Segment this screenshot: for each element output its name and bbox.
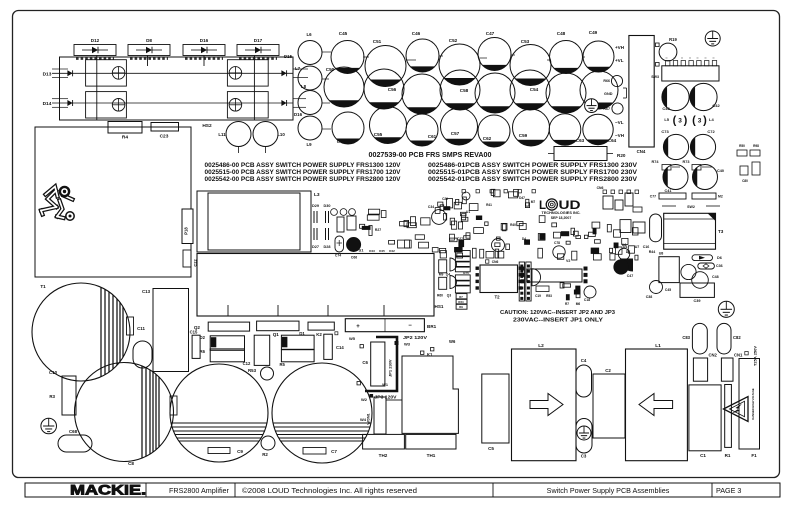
svg-text:Q3: Q3 xyxy=(447,294,452,298)
svg-text:BR1: BR1 xyxy=(427,324,437,329)
svg-text:(: ( xyxy=(692,115,696,127)
svg-text:C77: C77 xyxy=(650,195,656,199)
svg-text:C39: C39 xyxy=(694,299,701,303)
svg-text:CN2: CN2 xyxy=(709,353,718,358)
svg-text:L11: L11 xyxy=(218,132,226,137)
svg-text:C13: C13 xyxy=(142,289,151,294)
svg-text:R53: R53 xyxy=(546,294,552,298)
svg-text:K2: K2 xyxy=(316,332,322,337)
svg-text:L8: L8 xyxy=(301,84,307,89)
svg-text:C12: C12 xyxy=(243,361,251,366)
svg-text:0025515-00 PCB ASSY SWITCH POW: 0025515-00 PCB ASSY SWITCH POWER SUPPLY … xyxy=(205,169,402,176)
svg-text:T2: T2 xyxy=(494,295,500,300)
svg-text:C62: C62 xyxy=(483,136,492,141)
svg-text:SW2: SW2 xyxy=(687,205,695,209)
svg-text:DANGER HIGH VOLTAGE: DANGER HIGH VOLTAGE xyxy=(751,388,755,420)
svg-text:C48: C48 xyxy=(712,275,719,279)
svg-text:PAGE 3: PAGE 3 xyxy=(716,486,741,495)
svg-text:R41: R41 xyxy=(486,203,492,207)
svg-text:C60: C60 xyxy=(337,139,346,144)
svg-text:D30: D30 xyxy=(324,204,331,208)
svg-text:0025542-01PCB ASSY SWITCH POWE: 0025542-01PCB ASSY SWITCH POWER SUPPLY F… xyxy=(428,176,638,183)
svg-text:T3: T3 xyxy=(718,229,724,234)
svg-text:W4: W4 xyxy=(360,417,367,422)
svg-text:U4: U4 xyxy=(622,243,626,247)
svg-text:R19: R19 xyxy=(669,37,677,42)
svg-text:C7: C7 xyxy=(331,449,337,454)
svg-text:M6: M6 xyxy=(576,302,581,306)
svg-text:D4: D4 xyxy=(522,237,526,241)
svg-text:D2: D2 xyxy=(200,335,206,340)
svg-text:R27: R27 xyxy=(375,228,381,232)
svg-text:W2: W2 xyxy=(361,397,368,402)
svg-text:I: I xyxy=(672,57,676,58)
svg-text:C48: C48 xyxy=(557,31,566,36)
svg-text:SW3: SW3 xyxy=(651,75,659,79)
svg-text:R5: R5 xyxy=(280,362,286,367)
svg-text:D17: D17 xyxy=(254,38,263,43)
svg-text:C83: C83 xyxy=(682,335,690,340)
svg-text:C61: C61 xyxy=(428,134,437,139)
svg-text:D27: D27 xyxy=(312,245,319,249)
svg-text:C51: C51 xyxy=(373,39,382,44)
svg-text:T1: T1 xyxy=(40,284,46,289)
svg-text:I: I xyxy=(688,57,692,58)
svg-text:R1: R1 xyxy=(725,453,731,458)
svg-text:C64: C64 xyxy=(608,138,617,143)
svg-text:TECHNOLOGIES INC.: TECHNOLOGIES INC. xyxy=(542,211,581,215)
svg-text:C66: C66 xyxy=(351,256,357,260)
svg-text:C23: C23 xyxy=(160,134,169,140)
svg-text:C50: C50 xyxy=(326,67,335,72)
svg-text:230VAC--INSERT JP1 ONLY: 230VAC--INSERT JP1 ONLY xyxy=(513,318,604,324)
svg-text:C6: C6 xyxy=(362,360,368,365)
svg-text:R20: R20 xyxy=(617,153,626,158)
svg-text:C11: C11 xyxy=(137,326,145,331)
svg-text:D16: D16 xyxy=(294,112,303,117)
svg-text:M7: M7 xyxy=(531,200,536,204)
svg-text:R40: R40 xyxy=(510,223,516,227)
svg-text:C16: C16 xyxy=(643,245,650,249)
svg-text:3: 3 xyxy=(698,118,702,125)
svg-text:D29: D29 xyxy=(312,204,319,208)
svg-text:C52: C52 xyxy=(449,38,458,43)
svg-text:C2: C2 xyxy=(605,368,611,373)
svg-text:C80: C80 xyxy=(742,179,748,183)
svg-text:T25A 250V: T25A 250V xyxy=(753,346,758,366)
svg-text:FRS2800 Amplifier: FRS2800 Amplifier xyxy=(169,486,230,495)
svg-text:R50: R50 xyxy=(739,144,745,148)
svg-text:I: I xyxy=(704,57,708,58)
svg-text:(: ( xyxy=(673,115,677,127)
svg-text:R75: R75 xyxy=(463,271,469,275)
svg-text:R7: R7 xyxy=(459,295,463,299)
svg-text:U7: U7 xyxy=(635,245,640,249)
svg-text:I: I xyxy=(696,57,700,58)
svg-text:L10: L10 xyxy=(277,132,285,137)
svg-text:JP1 230V: JP1 230V xyxy=(388,359,393,377)
svg-text:JP2 120V: JP2 120V xyxy=(403,335,427,340)
svg-text:TH2: TH2 xyxy=(379,453,388,458)
svg-text:C36: C36 xyxy=(716,264,723,268)
svg-text:R9: R9 xyxy=(459,305,463,309)
svg-text:HS2: HS2 xyxy=(202,123,212,129)
svg-text:0027539-00 PCB FRS SMPS REVA00: 0027539-00 PCB FRS SMPS REVA00 xyxy=(369,150,492,159)
svg-text:+: + xyxy=(356,324,360,330)
svg-text:Q4: Q4 xyxy=(446,273,451,277)
svg-text:R53: R53 xyxy=(248,368,257,373)
svg-text:D14: D14 xyxy=(43,101,52,107)
svg-text:F1: F1 xyxy=(751,453,757,458)
svg-text:SEP 18,2007: SEP 18,2007 xyxy=(551,216,572,220)
svg-text:R24: R24 xyxy=(458,300,464,304)
svg-text:D8: D8 xyxy=(146,38,152,43)
svg-text:I: I xyxy=(711,57,715,58)
svg-text:C8: C8 xyxy=(128,461,134,466)
svg-text:0025486-00 PCB ASSY SWITCH POW: 0025486-00 PCB ASSY SWITCH POWER SUPPLY … xyxy=(205,162,402,169)
svg-text:C63: C63 xyxy=(576,138,585,143)
svg-text:C42: C42 xyxy=(712,103,720,108)
svg-text:L5: L5 xyxy=(664,117,669,122)
svg-text:C47: C47 xyxy=(627,274,634,278)
svg-text:Q1: Q1 xyxy=(273,332,280,337)
svg-text:R4: R4 xyxy=(122,135,128,141)
svg-text:C15: C15 xyxy=(190,330,198,335)
svg-text:C45: C45 xyxy=(339,31,348,36)
svg-text:R6: R6 xyxy=(200,349,206,354)
svg-text:−VL: −VL xyxy=(615,120,624,125)
svg-text:C40: C40 xyxy=(717,169,724,173)
svg-text:CN6: CN6 xyxy=(492,260,499,264)
svg-text:C4: C4 xyxy=(581,358,587,363)
svg-text:C59: C59 xyxy=(519,133,528,138)
svg-text:C10: C10 xyxy=(49,370,58,375)
svg-text:R3: R3 xyxy=(49,394,55,399)
svg-text:D47: D47 xyxy=(519,196,525,200)
svg-text:C49: C49 xyxy=(589,30,598,35)
svg-text:Switch Power Supply PCB Assemb: Switch Power Supply PCB Assemblies xyxy=(547,486,670,495)
svg-text:C78: C78 xyxy=(554,241,560,245)
svg-text:R73: R73 xyxy=(683,160,690,164)
svg-text:GND: GND xyxy=(604,92,613,96)
svg-text:D28: D28 xyxy=(324,245,331,249)
svg-text:R7: R7 xyxy=(565,302,569,306)
svg-text:C57: C57 xyxy=(451,131,460,136)
svg-text:R60: R60 xyxy=(437,294,443,298)
svg-text:M2: M2 xyxy=(718,195,723,199)
svg-text:CN6: CN6 xyxy=(597,186,604,190)
svg-text:C47: C47 xyxy=(486,31,495,36)
svg-text:3: 3 xyxy=(678,118,682,125)
svg-text:): ) xyxy=(684,115,688,127)
svg-text:CN4: CN4 xyxy=(637,149,646,154)
svg-text:W3: W3 xyxy=(404,342,411,347)
svg-text:C72: C72 xyxy=(707,129,715,134)
svg-text:MACKIE.: MACKIE. xyxy=(70,483,146,498)
svg-text:L6: L6 xyxy=(306,32,312,37)
svg-text:I: I xyxy=(665,57,669,58)
svg-text:W6: W6 xyxy=(449,339,456,344)
svg-text:C54: C54 xyxy=(530,87,539,92)
svg-text:W/DM1: W/DM1 xyxy=(367,413,371,424)
svg-text:U1: U1 xyxy=(466,210,470,214)
svg-text:0025542-00 PCB ASSY SWITCH POW: 0025542-00 PCB ASSY SWITCH POWER SUPPLY … xyxy=(205,176,402,183)
svg-text:R98: R98 xyxy=(753,144,759,148)
svg-text:L4: L4 xyxy=(709,117,714,122)
svg-text:L7: L7 xyxy=(295,66,301,71)
svg-text:+VL: +VL xyxy=(615,58,624,63)
svg-text:C9: C9 xyxy=(237,449,243,454)
svg-text:C68: C68 xyxy=(69,429,78,434)
svg-text:R67: R67 xyxy=(603,107,610,111)
svg-text:C34: C34 xyxy=(428,205,434,209)
svg-text:L3: L3 xyxy=(314,192,320,198)
svg-text:C26: C26 xyxy=(442,197,448,201)
svg-text:L2: L2 xyxy=(538,343,544,349)
svg-text:C53: C53 xyxy=(521,39,530,44)
svg-text:−: − xyxy=(408,323,412,329)
svg-text:L9: L9 xyxy=(306,142,312,147)
svg-text:D43: D43 xyxy=(369,249,375,253)
svg-text:0025486-01PCB ASSY SWITCH POWE: 0025486-01PCB ASSY SWITCH POWER SUPPLY F… xyxy=(428,162,638,169)
svg-text:D13: D13 xyxy=(43,71,52,77)
svg-text:R74: R74 xyxy=(652,160,660,164)
svg-text:C73: C73 xyxy=(661,129,669,134)
svg-text:C55: C55 xyxy=(374,132,383,137)
svg-text:P18: P18 xyxy=(184,227,189,235)
svg-text:V2: V2 xyxy=(566,259,570,263)
svg-text:0025515-01PCB ASSY SWITCH POWE: 0025515-01PCB ASSY SWITCH POWER SUPPLY F… xyxy=(428,169,638,176)
svg-text:C41: C41 xyxy=(665,189,672,193)
svg-text:C45: C45 xyxy=(665,288,671,292)
svg-text:+VH: +VH xyxy=(615,45,625,50)
svg-text:C43: C43 xyxy=(662,106,670,111)
svg-text:): ) xyxy=(703,115,707,127)
svg-text:D6: D6 xyxy=(717,256,722,260)
svg-text:C56: C56 xyxy=(388,87,397,92)
svg-text:D45: D45 xyxy=(379,249,385,253)
svg-text:C18: C18 xyxy=(584,298,590,302)
svg-text:C82: C82 xyxy=(733,335,741,340)
svg-text:D42: D42 xyxy=(389,249,395,253)
svg-text:−VH: −VH xyxy=(615,133,625,138)
svg-text:D12: D12 xyxy=(91,38,100,43)
svg-text:U8: U8 xyxy=(659,252,664,256)
svg-text:R66: R66 xyxy=(603,79,610,83)
svg-text:M9: M9 xyxy=(439,273,444,277)
svg-text:C46: C46 xyxy=(412,31,421,36)
svg-text:C5: C5 xyxy=(488,446,494,451)
svg-text:C38: C38 xyxy=(646,295,653,299)
svg-text:C58: C58 xyxy=(460,88,469,93)
svg-text:R2: R2 xyxy=(262,452,268,457)
svg-text:©2008 LOUD Technologies Inc. A: ©2008 LOUD Technologies Inc. All rights … xyxy=(242,486,417,495)
svg-text:C1: C1 xyxy=(700,453,706,458)
svg-text:CAUTION: 120VAC--INSERT JP2 AN: CAUTION: 120VAC--INSERT JP2 AND JP3 xyxy=(500,310,615,316)
svg-text:C19: C19 xyxy=(535,294,541,298)
svg-text:R44: R44 xyxy=(649,250,656,254)
svg-text:CN1: CN1 xyxy=(734,353,743,358)
svg-text:C74: C74 xyxy=(335,254,341,258)
svg-text:W5: W5 xyxy=(349,336,356,341)
svg-text:TH1: TH1 xyxy=(427,453,436,458)
svg-text:C3: C3 xyxy=(581,454,587,459)
svg-text:D15: D15 xyxy=(284,54,293,59)
svg-text:W1: W1 xyxy=(382,383,388,387)
svg-text:HS1: HS1 xyxy=(435,304,444,309)
svg-text:I: I xyxy=(680,57,684,58)
svg-text:D16: D16 xyxy=(200,38,209,43)
svg-text:C14: C14 xyxy=(336,345,344,350)
svg-text:L1: L1 xyxy=(655,343,661,349)
